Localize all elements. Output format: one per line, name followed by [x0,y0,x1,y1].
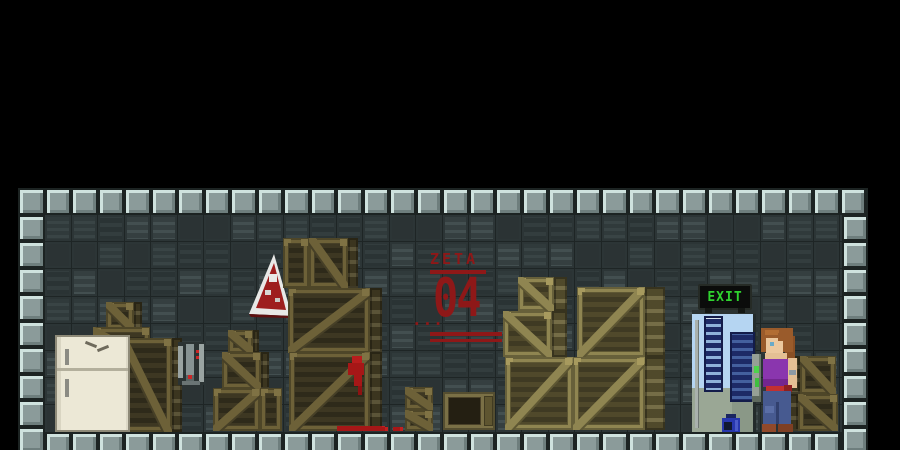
floor-tile [787,432,814,450]
floor-tile [813,432,840,450]
floor-tile [124,432,151,450]
metal-frame [18,188,868,450]
floor-tile [151,432,178,450]
frame-tile [18,374,45,401]
frame-tile [866,188,868,215]
floor-tile [389,432,416,450]
frame-tile [18,188,45,215]
frame-tile [842,241,869,268]
frame-tile [18,321,45,348]
floor-tile [575,432,602,450]
frame-tile [18,427,45,450]
frame-tile [842,374,869,401]
frame-tile [336,188,363,215]
floor-tile [71,432,98,450]
frame-tile [230,188,257,215]
floor-tile [707,432,734,450]
frame-tile [654,188,681,215]
frame-tile [442,188,469,215]
frame-tile [18,294,45,321]
frame-tile [45,188,72,215]
frame-tile [842,427,869,450]
floor-tile [283,432,310,450]
frame-tile [842,215,869,242]
frame-tile [71,188,98,215]
frame-tile [522,188,549,215]
frame-tile [469,188,496,215]
frame-tile [734,188,761,215]
floor-tile [310,432,337,450]
floor-tile [204,432,231,450]
floor-tile [177,432,204,450]
floor-tile [522,432,549,450]
frame-tile [842,294,869,321]
frame-tile [177,188,204,215]
floor-tile [628,432,655,450]
game-viewport[interactable]: ZETA 04 ... EXIT [0,0,900,450]
floor-tile [416,432,443,450]
frame-tile [495,188,522,215]
frame-tile [18,400,45,427]
floor-tile [363,432,390,450]
floor-tile [336,432,363,450]
frame-tile [389,188,416,215]
frame-tile [257,188,284,215]
floor-tile [469,432,496,450]
floor-tile [45,432,72,450]
floor-tile [495,432,522,450]
frame-tile [18,268,45,295]
frame-tile [18,241,45,268]
frame-tile [18,347,45,374]
frame-tile [813,188,840,215]
floor-tile [601,432,628,450]
floor-tile [230,432,257,450]
floor-tile [257,432,284,450]
frame-tile [98,188,125,215]
frame-tile [628,188,655,215]
frame-tile [310,188,337,215]
floor-tile [654,432,681,450]
floor-tile [760,432,787,450]
floor-tile [548,432,575,450]
frame-tile [840,188,867,215]
floor-tile [442,432,469,450]
frame-tile [124,188,151,215]
frame-tile [787,188,814,215]
frame-tile [18,215,45,242]
floor-tile [734,432,761,450]
frame-tile [575,188,602,215]
frame-tile [363,188,390,215]
frame-tile [151,188,178,215]
floor-tile [681,432,708,450]
frame-tile [416,188,443,215]
frame-tile [681,188,708,215]
frame-tile [204,188,231,215]
frame-tile [601,188,628,215]
floor-tile [98,432,125,450]
frame-tile [707,188,734,215]
frame-tile [842,400,869,427]
frame-tile [842,347,869,374]
frame-tile [283,188,310,215]
level-scene: ZETA 04 ... EXIT [18,188,868,450]
frame-tile [842,268,869,295]
frame-tile [842,321,869,348]
frame-tile [760,188,787,215]
frame-tile [548,188,575,215]
